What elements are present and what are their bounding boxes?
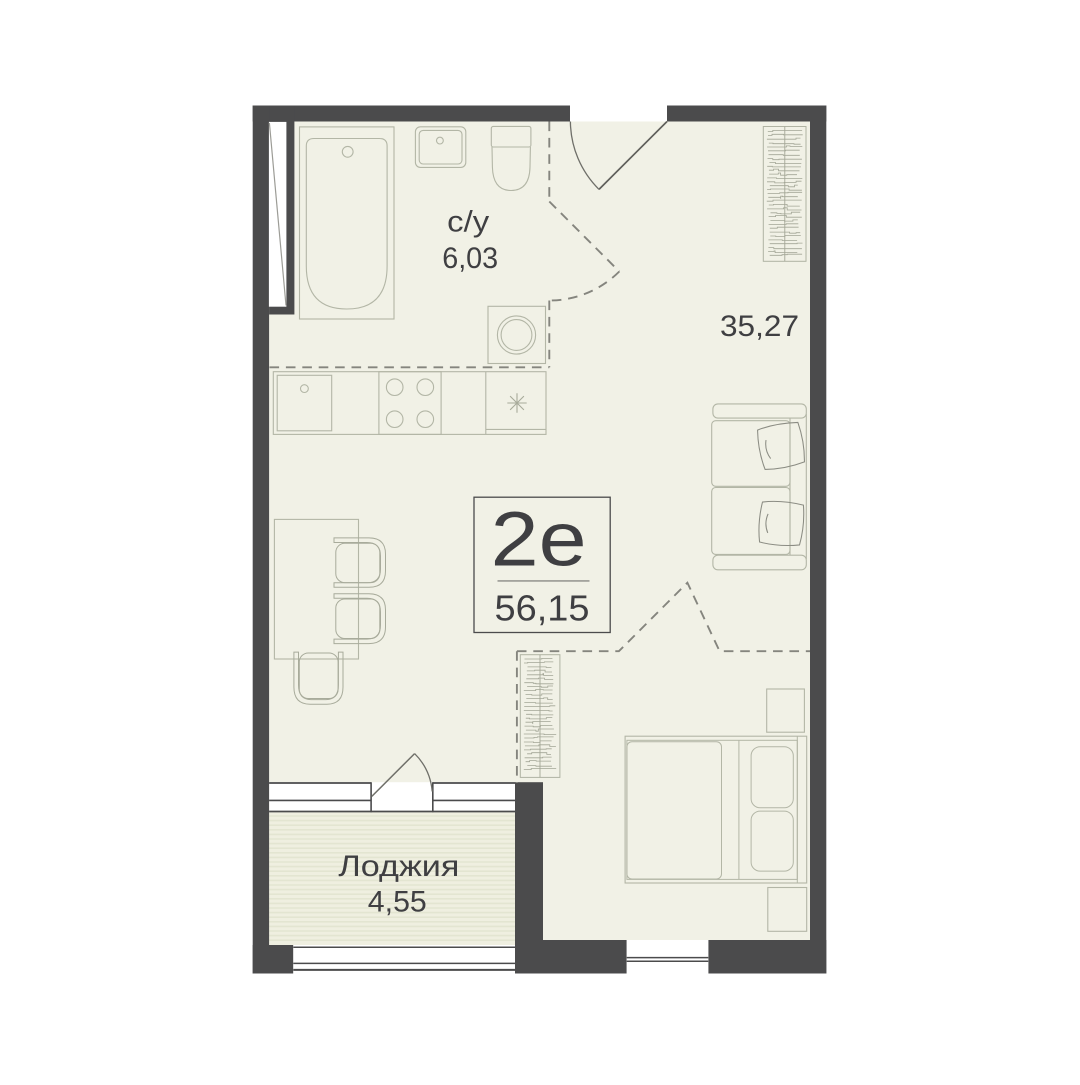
svg-text:с/у: с/у [447,205,489,238]
svg-text:2е: 2е [491,496,587,582]
svg-text:4,55: 4,55 [368,886,427,919]
svg-text:Лоджия: Лоджия [338,850,459,883]
svg-text:35,27: 35,27 [720,310,799,343]
svg-text:56,15: 56,15 [495,588,590,629]
svg-text:6,03: 6,03 [442,242,498,275]
